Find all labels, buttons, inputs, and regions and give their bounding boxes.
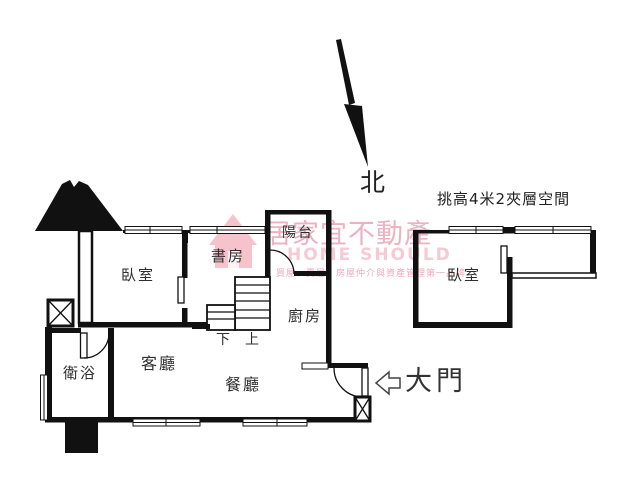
north-arrow-icon: [336, 39, 368, 167]
floorplan-drawing: [0, 0, 637, 496]
bedroom-left-wall: [79, 231, 92, 323]
black-column: [65, 422, 98, 453]
doors: [81, 246, 508, 397]
entrance-arrow-icon: [376, 372, 400, 394]
floor-plan: 居家宜不動產 HOME SHOULD 買屋、賣屋，房屋仲介與資產管理第一品牌: [0, 0, 637, 496]
roof-triangle: [35, 180, 123, 231]
kitchen-counter: [302, 363, 328, 369]
walls-main-unit: [45, 210, 370, 453]
mezzanine-open-edge: [512, 273, 596, 278]
